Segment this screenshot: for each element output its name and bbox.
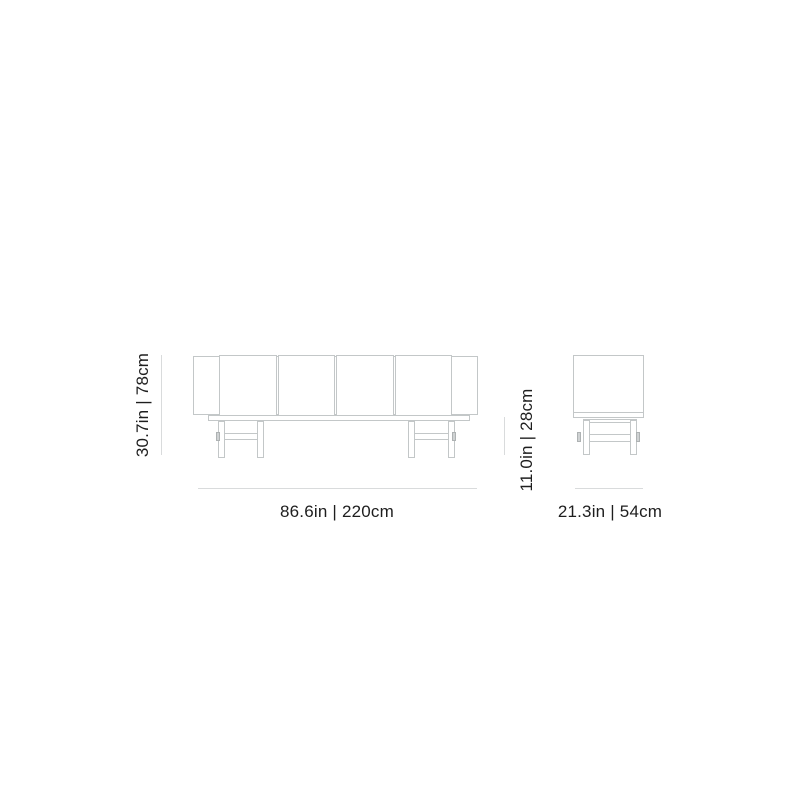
side-bottom-panel-line [574,412,643,413]
front-door-3 [336,355,394,416]
side-leg-height-dimension-line [504,417,505,455]
front-underframe-rail [208,415,470,421]
front-left-stretcher [224,433,258,440]
front-height-dimension-line [161,355,162,455]
front-door-4 [395,355,453,416]
front-doors [219,355,452,416]
front-left-connector [216,432,220,441]
front-right-connector [452,432,456,441]
front-width-dimension-label: 86.6in | 220cm [280,502,394,522]
side-cabinet-outline [573,355,644,418]
front-door-2 [278,355,336,416]
front-door-1 [219,355,277,416]
side-left-connector [577,432,581,442]
front-width-dimension-line [198,488,477,489]
side-leg-height-dimension-label: 11.0in | 28cm [517,388,537,491]
front-leg-inner-left [257,421,264,458]
front-height-dimension-label: 30.7in | 78cm [133,353,153,457]
front-right-stretcher [414,433,449,440]
side-depth-dimension-label: 21.3in | 54cm [558,502,662,522]
side-depth-dimension-line [575,488,643,489]
dimension-diagram: 30.7in | 78cm 86.6in | 220cm 11.0in | 28… [0,0,800,800]
side-right-connector [636,432,640,442]
side-underframe-rail [583,419,637,423]
side-stretcher [589,434,631,442]
